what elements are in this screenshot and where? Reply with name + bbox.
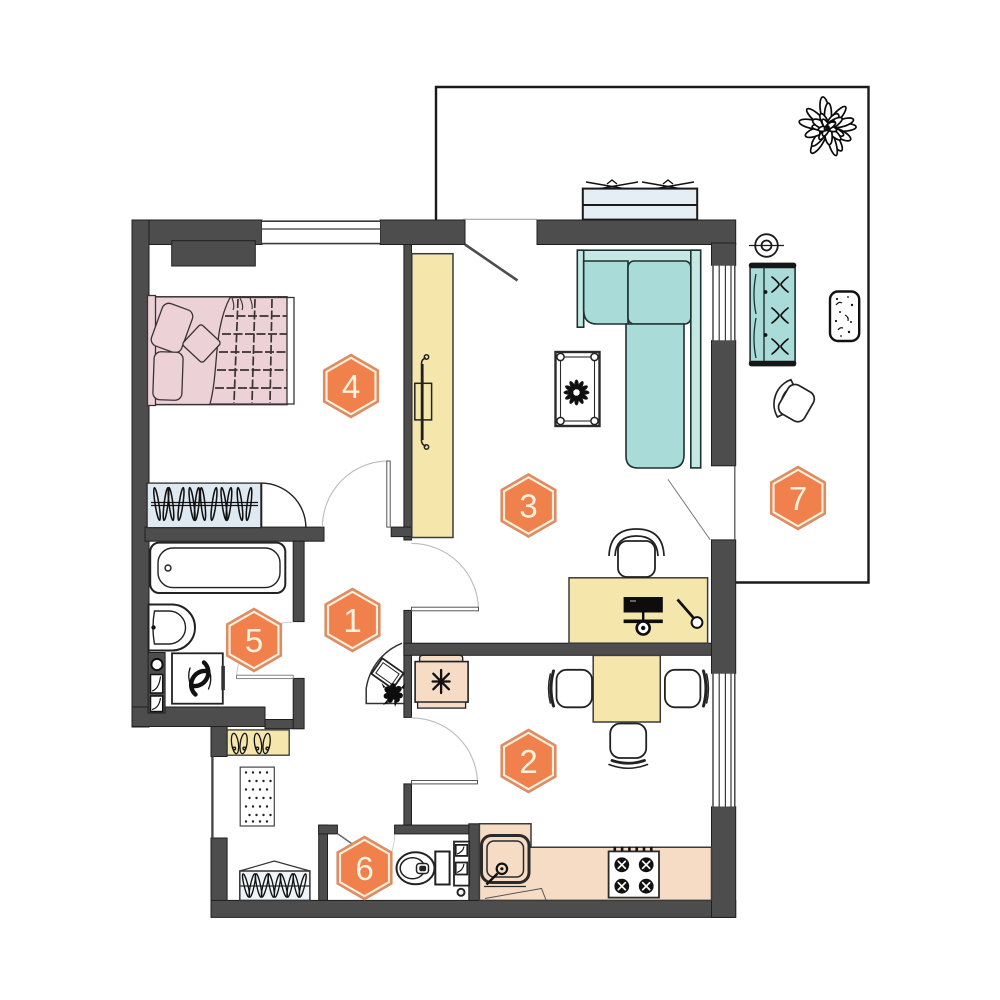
- svg-text:1: 1: [343, 602, 361, 639]
- svg-text:4: 4: [342, 368, 360, 405]
- svg-text:2: 2: [519, 743, 537, 780]
- svg-text:5: 5: [245, 622, 263, 659]
- svg-text:7: 7: [789, 480, 807, 517]
- svg-text:3: 3: [519, 487, 537, 524]
- svg-text:6: 6: [355, 850, 373, 887]
